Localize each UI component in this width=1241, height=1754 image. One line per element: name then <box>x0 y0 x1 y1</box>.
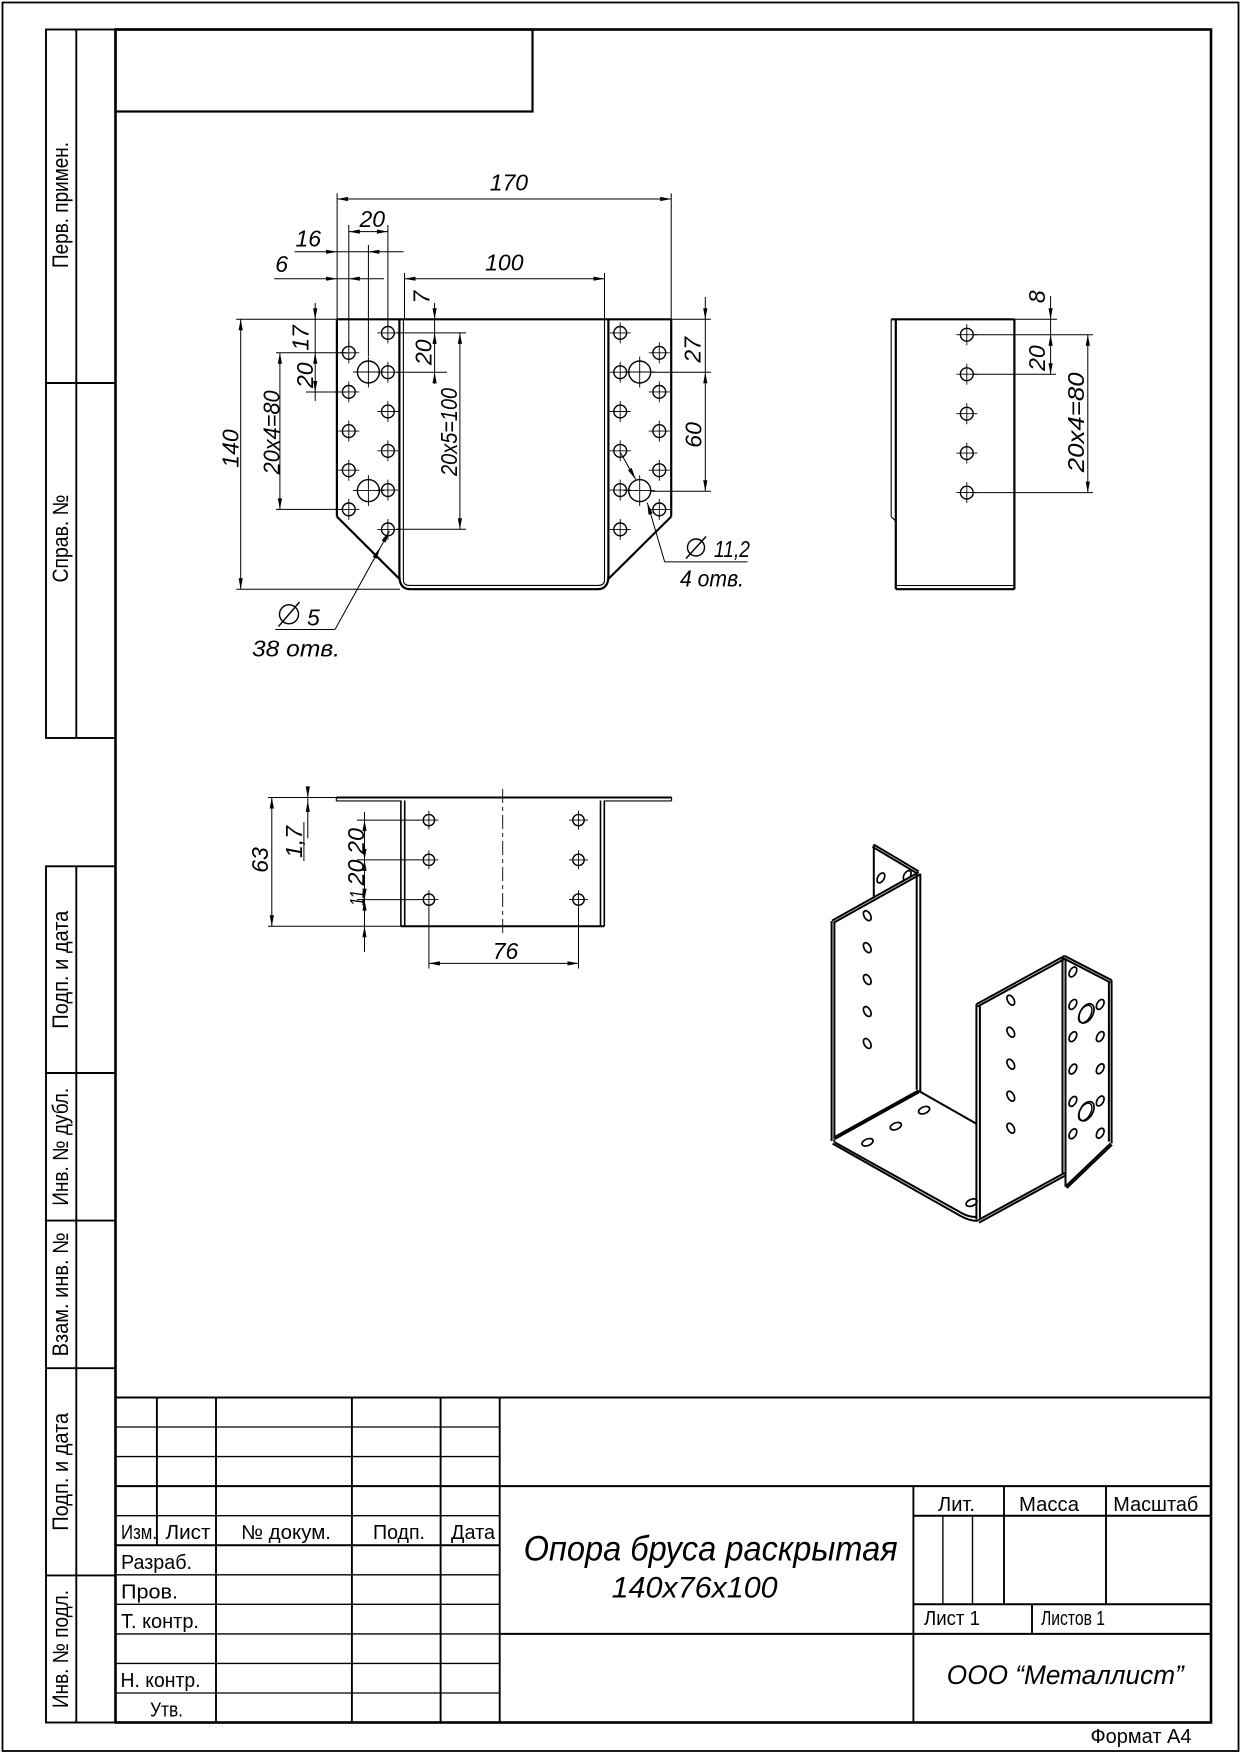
svg-text:6: 6 <box>275 251 288 277</box>
svg-text:Н. контр.: Н. контр. <box>121 1670 201 1692</box>
svg-text:20: 20 <box>292 362 318 389</box>
svg-text:140х76х100: 140х76х100 <box>612 1572 778 1605</box>
svg-text:4 отв.: 4 отв. <box>680 566 744 592</box>
svg-text:Разраб.: Разраб. <box>121 1552 192 1574</box>
svg-text:1,7: 1,7 <box>281 825 307 858</box>
svg-text:ООО “Металлист”: ООО “Металлист” <box>947 1660 1185 1690</box>
svg-text:Инв. № подл.: Инв. № подл. <box>48 1590 73 1708</box>
svg-text:11,2: 11,2 <box>714 536 750 562</box>
svg-text:Пров.: Пров. <box>121 1582 178 1604</box>
svg-text:100: 100 <box>485 250 524 276</box>
svg-text:17: 17 <box>288 324 314 351</box>
svg-text:Перв. примен.: Перв. примен. <box>48 142 73 268</box>
svg-text:20: 20 <box>411 339 437 366</box>
svg-text:Масса: Масса <box>1019 1494 1080 1516</box>
svg-text:20: 20 <box>359 206 386 232</box>
svg-text:Подп. и дата: Подп. и дата <box>48 1412 73 1531</box>
svg-text:16: 16 <box>296 226 322 252</box>
svg-text:Подп. и дата: Подп. и дата <box>48 910 73 1029</box>
svg-text:5: 5 <box>307 605 320 631</box>
svg-text:20x4=80: 20x4=80 <box>259 390 285 475</box>
svg-text:7: 7 <box>409 290 435 304</box>
svg-text:11: 11 <box>347 890 369 906</box>
svg-text:Взам. инв. №: Взам. инв. № <box>48 1232 73 1356</box>
svg-text:60: 60 <box>681 422 707 448</box>
svg-text:Лист 1: Лист 1 <box>924 1608 980 1630</box>
svg-text:Опора бруса раскрытая: Опора бруса раскрытая <box>524 1530 898 1569</box>
svg-text:Подп.: Подп. <box>373 1522 425 1544</box>
svg-text:27: 27 <box>680 336 706 364</box>
svg-text:63: 63 <box>247 847 273 873</box>
svg-text:Утв.: Утв. <box>150 1700 183 1722</box>
svg-text:20: 20 <box>1024 345 1050 372</box>
svg-text:38 отв.: 38 отв. <box>252 636 340 662</box>
svg-text:Т. контр.: Т. контр. <box>121 1611 199 1633</box>
svg-text:Формат А4: Формат А4 <box>1090 1726 1191 1748</box>
svg-text:20: 20 <box>343 859 369 886</box>
svg-text:Лист: Лист <box>166 1522 211 1544</box>
svg-text:Масштаб: Масштаб <box>1113 1494 1198 1516</box>
svg-text:20x5=100: 20x5=100 <box>436 388 462 477</box>
svg-text:Дата: Дата <box>451 1522 496 1544</box>
svg-text:170: 170 <box>490 170 529 196</box>
svg-text:8: 8 <box>1024 290 1050 303</box>
svg-text:140: 140 <box>218 429 244 468</box>
svg-text:20x4=80: 20x4=80 <box>1063 372 1089 473</box>
svg-text:Изм.: Изм. <box>121 1522 157 1544</box>
svg-text:76: 76 <box>493 938 519 964</box>
svg-text:20: 20 <box>343 828 369 855</box>
svg-text:Инв. № дубл.: Инв. № дубл. <box>48 1088 73 1206</box>
svg-text:Лит.: Лит. <box>938 1494 975 1516</box>
svg-text:Справ. №: Справ. № <box>48 495 73 583</box>
svg-text:Листов 1: Листов 1 <box>1041 1608 1105 1630</box>
svg-text:№ докум.: № докум. <box>241 1522 331 1544</box>
